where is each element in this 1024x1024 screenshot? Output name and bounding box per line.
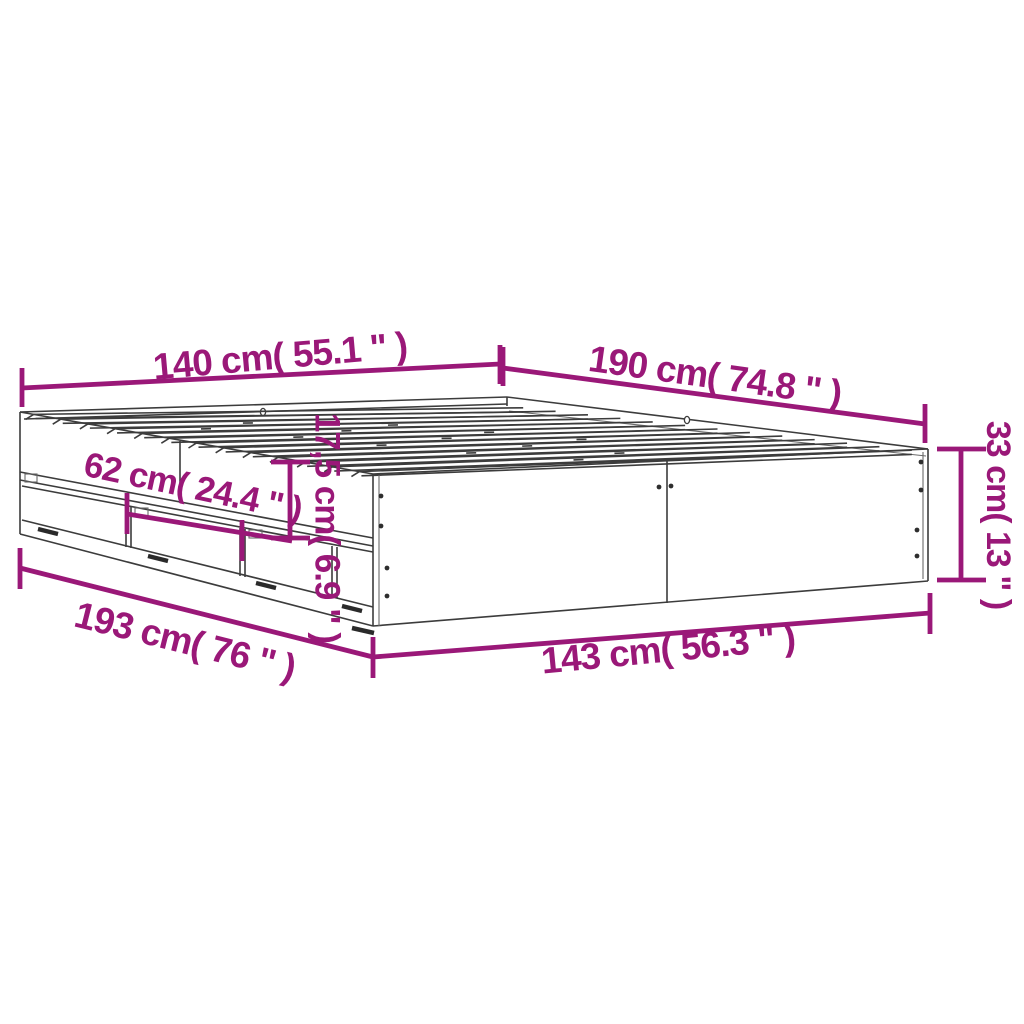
dimension-line-190cm: 190 cm( 74.8 " ) [503,338,925,443]
screw-dot [915,554,920,559]
dimension-line-33cm: 33 cm( 13 " ) [937,421,1017,609]
dim-label-140cm: 140 cm( 55.1 " ) [151,324,408,387]
screw-dot [385,594,390,599]
bed-frame-drawing [20,397,928,633]
screw-dot [657,485,662,490]
rail-hole-right [684,416,689,423]
dim-label-62cm: 62 cm( 24.4 " ) [81,445,306,529]
screw-dot [669,484,674,489]
drawer-foot [256,583,276,588]
screw-dot [379,524,384,529]
screw-dot [379,494,384,499]
bed-dimension-diagram: 140 cm( 55.1 " ) 190 cm( 74.8 " ) 33 cm(… [0,0,1024,1024]
screw-dot [385,566,390,571]
drawer-foot [38,529,58,534]
dim-label-143cm: 143 cm( 56.3 " ) [539,616,796,681]
dim-label-190cm: 190 cm( 74.8 " ) [586,338,844,414]
dimension-line-143cm: 143 cm( 56.3 " ) [373,593,930,682]
dim-label-17-5cm: 17,5 cm( 6.9 " ) [308,413,347,643]
dimension-line-140cm: 140 cm( 55.1 " ) [22,324,500,407]
diagram-canvas: 140 cm( 55.1 " ) 190 cm( 74.8 " ) 33 cm(… [0,0,1024,1024]
drawer-foot [148,556,168,561]
screw-dot [919,460,924,465]
dimension-line-17-5cm: 17,5 cm( 6.9 " ) [271,413,347,643]
bed-front-panel [352,449,928,633]
dim-label-33cm: 33 cm( 13 " ) [979,421,1017,609]
screw-dot [915,528,920,533]
screw-dot [919,488,924,493]
corner-foot [352,628,374,633]
